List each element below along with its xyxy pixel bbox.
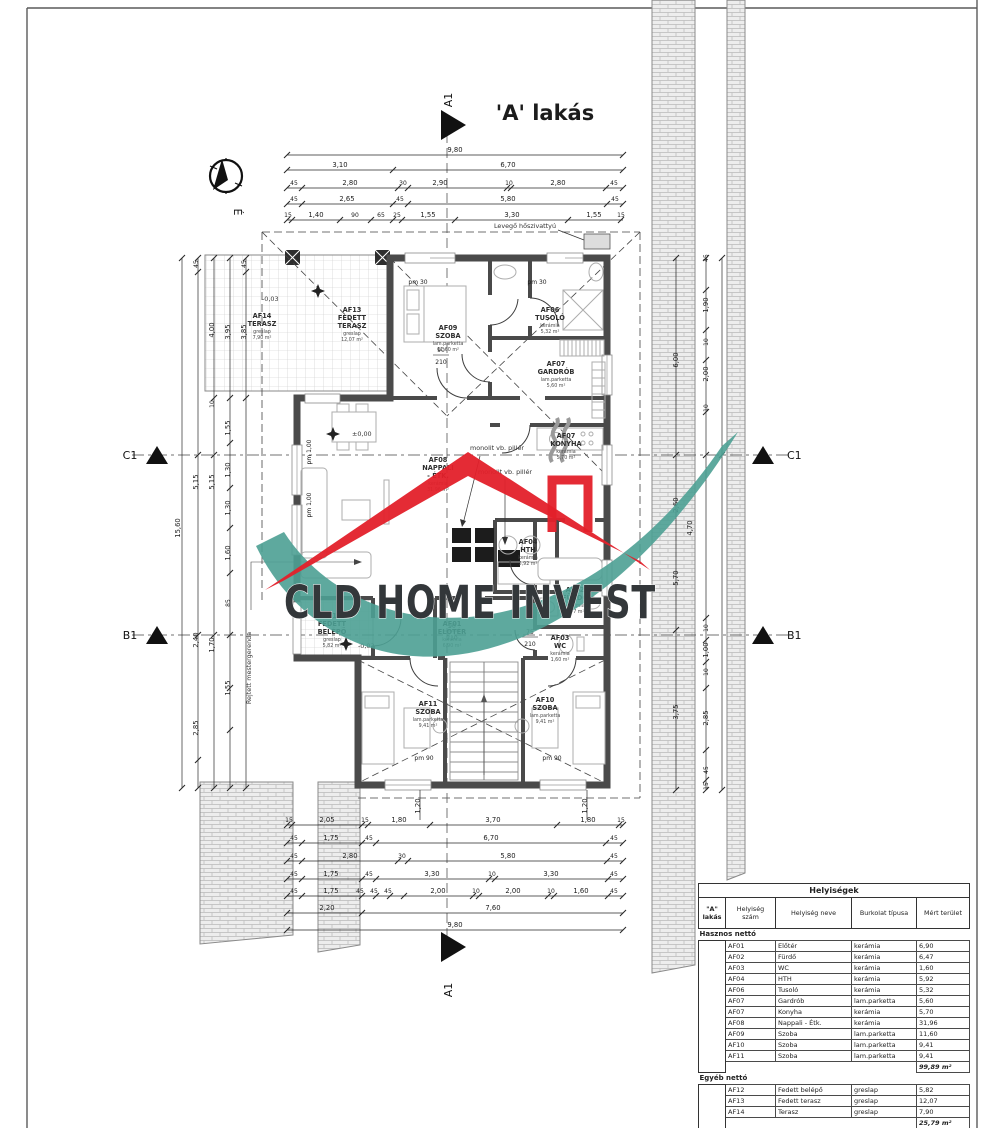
dim-label: 10 <box>703 624 710 632</box>
terrace-door <box>305 394 340 403</box>
dim-label: 2,00 <box>702 366 710 381</box>
apartment-cell <box>699 1085 726 1128</box>
cell-floor: lam.parketta <box>852 996 917 1007</box>
cell-room-id: AF11 <box>726 1051 776 1062</box>
section-label: Hasznos nettó <box>699 929 970 941</box>
cell-room-name: Terasz <box>776 1107 852 1118</box>
room-id: AF14 <box>253 312 272 320</box>
room-name: SZOBA <box>532 704 558 712</box>
room-name: KONYHA <box>550 440 582 448</box>
stair-arrow-head <box>481 694 487 702</box>
dim-label: 2,80 <box>342 852 357 860</box>
cell-room-id: AF12 <box>726 1085 776 1096</box>
room-name: HTH <box>520 546 536 554</box>
level-mark: -0,03 <box>262 295 279 303</box>
cell-room-id: AF08 <box>726 1018 776 1029</box>
room-area: 5,60 m² <box>547 383 566 389</box>
cell-floor: kerámia <box>852 985 917 996</box>
dim-label: 2,40 <box>192 632 200 647</box>
table-row: AF08Nappali - Étk.kerámia31,96 <box>699 1018 970 1029</box>
room-area: 9,41 m² <box>536 719 555 725</box>
dim-label: 1,55 <box>224 420 232 435</box>
cell-room-id: AF07 <box>726 996 776 1007</box>
room-material: lam.parketta <box>541 377 572 383</box>
cell-floor: lam.parketta <box>852 1040 917 1051</box>
dim-label: 15 <box>617 817 625 824</box>
chair <box>356 404 368 412</box>
bottom-left-strip-wide <box>200 782 293 944</box>
cell-room-id: AF13 <box>726 1096 776 1107</box>
cell-area: 6,47 <box>917 952 970 963</box>
room-material: kerámia <box>518 554 537 561</box>
dim-label: 3,70 <box>485 816 500 824</box>
col-header-room-name: Helyiség neve <box>776 898 852 929</box>
dim-label: 4,00 <box>208 322 216 337</box>
dim-label: 1,20 <box>581 798 589 813</box>
cell-area: 9,41 <box>917 1040 970 1051</box>
cell-room-id: AF07 <box>726 1007 776 1018</box>
empty-cell <box>726 1118 917 1128</box>
cell-room-name: WC <box>776 963 852 974</box>
dim-label: 1,40 <box>308 211 323 219</box>
dim-label: 1,75 <box>323 834 338 842</box>
bottom-left-strip-narrow <box>318 782 360 952</box>
cell-floor: kerámia <box>852 952 917 963</box>
cell-area: 31,96 <box>917 1018 970 1029</box>
cell-floor: lam.parketta <box>852 1051 917 1062</box>
subtotal-area: 99,89 m² <box>917 1062 970 1073</box>
dim-label: 45 <box>290 835 298 842</box>
pillar-block <box>498 550 520 567</box>
room-name: TERASZ <box>338 322 367 330</box>
pillar-leader-arrow <box>460 519 466 527</box>
dim-label: 45 <box>610 871 618 878</box>
dim-label: 45 <box>610 835 618 842</box>
dim-label: 90 <box>351 212 359 219</box>
dim-label: 1,55 <box>224 680 232 695</box>
stove-burner <box>589 432 593 436</box>
dim-label: 1,90 <box>702 297 710 312</box>
heat-pump-note: Levegő hőszivattyú <box>494 221 556 230</box>
dim-label: 2,65 <box>339 195 354 203</box>
shower-cross <box>563 290 603 330</box>
room-id: AF13 <box>343 306 362 314</box>
table-row: AF11Szobalam.parketta9,41 <box>699 1051 970 1062</box>
pillar-block <box>475 528 494 543</box>
dim-label: 30 <box>399 180 407 187</box>
table-row: AF06Tusolókerámia5,32 <box>699 985 970 996</box>
cell-room-id: AF09 <box>726 1029 776 1040</box>
room-schedule-table: Helyiségek "A" lakás Helyiség szám Helyi… <box>698 883 969 1128</box>
dim-label: 5,80 <box>500 852 515 860</box>
room-material: lam.parketta <box>433 341 464 347</box>
dim-label: 5,70 <box>672 570 680 585</box>
dim-label: 1,80 <box>580 816 595 824</box>
dim-label: 1,60 <box>573 887 588 895</box>
room-id: AF11 <box>419 700 438 708</box>
section-label: Egyéb nettó <box>699 1073 970 1085</box>
wardrobe-slats <box>564 340 600 356</box>
cell-room-id: AF14 <box>726 1107 776 1118</box>
dim-label: 1,75 <box>323 887 338 895</box>
room-area: 5,82 m² <box>323 643 342 649</box>
col-header-line: lakás <box>701 913 723 921</box>
dim-label: 45 <box>365 871 373 878</box>
cell-room-name: Szoba <box>776 1051 852 1062</box>
cell-area: 5,92 <box>917 974 970 985</box>
a1-flag-top <box>441 110 466 140</box>
dim-label: 4,70 <box>686 520 694 535</box>
dim-label: 1,60 <box>224 545 232 560</box>
sink <box>494 265 516 279</box>
cell-room-name: Tusoló <box>776 985 852 996</box>
dim-label: 45 <box>370 888 378 895</box>
cell-floor: greslap <box>852 1107 917 1118</box>
dim-label: 1,75 <box>323 870 338 878</box>
door-arc <box>462 354 490 382</box>
dim-label: 5,15 <box>192 474 200 489</box>
dim-label: 3,30 <box>504 211 519 219</box>
cell-area: 6,90 <box>917 941 970 952</box>
cell-room-name: Szoba <box>776 1029 852 1040</box>
room-material: kerámia <box>540 322 559 329</box>
dim-label: 3,30 <box>424 870 439 878</box>
c1-label-right: C1 <box>787 449 802 462</box>
dim-label: 15 <box>617 212 625 219</box>
sofa <box>301 468 327 558</box>
door-arc <box>410 658 438 686</box>
table-row: AF04HTHkerámia5,92 <box>699 974 970 985</box>
cell-floor: greslap <box>852 1085 917 1096</box>
pm-label: pm 30 <box>527 279 546 286</box>
stairs <box>450 662 518 780</box>
cell-room-name: Gardrób <box>776 996 852 1007</box>
dim-label: 45 <box>290 871 298 878</box>
pm-label: pm 1,00 <box>306 439 313 464</box>
table-row: AF13Fedett teraszgreslap12,07 <box>699 1096 970 1107</box>
floor-plan-sheet: 9,80 3,10 6,70 45 2,80 30 2,90 10 2,80 4… <box>0 0 1000 1128</box>
pm-label: pm 90 <box>542 755 561 762</box>
dim-label: 45 <box>356 888 364 895</box>
dim-label: 45 <box>241 260 248 268</box>
room-area: 12,07 m² <box>341 337 363 343</box>
room-material: lam.parketta <box>530 713 561 719</box>
logo-wordmark: CLD HOME INVEST <box>284 576 656 629</box>
dim-label: 3,10 <box>332 161 347 169</box>
room-area: 7,90 m² <box>253 335 272 341</box>
dim-label: 10 <box>703 404 710 412</box>
dim-label: 1,20 <box>414 798 422 813</box>
room-area: 5,32 m² <box>541 329 560 335</box>
dim-label: 1,55 <box>420 211 435 219</box>
a1-flag-bottom <box>441 932 466 962</box>
north-label: É <box>231 209 244 216</box>
dim-label: 2,90 <box>432 179 447 187</box>
dim-label: 15 <box>285 817 293 824</box>
dim-label: 15 <box>361 817 369 824</box>
cell-area: 5,70 <box>917 1007 970 1018</box>
dim-label: 1,30 <box>224 462 232 477</box>
dim-label: 1,55 <box>586 211 601 219</box>
room-material: lam.parketta <box>413 717 444 723</box>
dim-label: 10 <box>488 871 496 878</box>
dim-label: 65 <box>377 212 385 219</box>
dim-label: 30 <box>398 853 406 860</box>
table-sum-row: 25,79 m² <box>699 1118 970 1128</box>
dim-label: 15,60 <box>174 518 182 537</box>
cell-room-id: AF03 <box>726 963 776 974</box>
dim-label: 1,00 <box>702 642 710 657</box>
dim-label: 2,00 <box>505 887 520 895</box>
level-mark: ±0,00 <box>352 430 372 438</box>
dim-label: 2,80 <box>342 179 357 187</box>
table-row: AF07Gardróblam.parketta5,60 <box>699 996 970 1007</box>
room-name: SZOBA <box>415 708 441 716</box>
table-row: AF14Teraszgreslap7,90 <box>699 1107 970 1118</box>
table-sum-row: 99,89 m² <box>699 1062 970 1073</box>
room-area: 11,60 m² <box>437 347 459 353</box>
room-area: 5,92 m² <box>519 561 538 567</box>
dim-label: 45 <box>610 180 618 187</box>
cell-room-name: Előtér <box>776 941 852 952</box>
dim-label: 45 <box>610 888 618 895</box>
level-star <box>326 427 340 441</box>
pm-label: pm 1,00 <box>306 492 313 517</box>
dim-label: 3,75 <box>672 704 680 719</box>
cell-floor: kerámia <box>852 1018 917 1029</box>
pillar-note: monolit vb. pillér <box>470 444 524 452</box>
toilet <box>589 263 603 281</box>
a1-label-bottom: A1 <box>442 983 455 998</box>
b1-label-right: B1 <box>787 629 802 642</box>
cell-area: 9,41 <box>917 1051 970 1062</box>
wc-tank <box>577 637 584 651</box>
room-name: TUSOLÓ <box>535 313 565 322</box>
dim-label: 1,70 <box>208 637 216 652</box>
right-wall-strip-wide <box>652 0 695 973</box>
dim-label: 2,85 <box>702 710 710 725</box>
dim-label: 15 <box>703 782 710 790</box>
dim-label: 45 <box>290 196 298 203</box>
dim-label: 10 <box>472 888 480 895</box>
dim-label: 3,95 <box>224 324 232 339</box>
door-arc <box>437 368 467 398</box>
cell-floor: kerámia <box>852 963 917 974</box>
dim-label: 45 <box>396 196 404 203</box>
cell-area: 11,60 <box>917 1029 970 1040</box>
dim-label: 45 <box>610 853 618 860</box>
cell-floor: kerámia <box>852 1007 917 1018</box>
heat-pump-leader <box>558 230 584 240</box>
dim-label: 45 <box>384 888 392 895</box>
dim-label: 45 <box>703 254 710 262</box>
table-row: AF03WCkerámia1,60 <box>699 963 970 974</box>
dim-label: 7,60 <box>485 904 500 912</box>
cell-room-name: Nappali - Étk. <box>776 1018 852 1029</box>
cell-room-name: Fürdő <box>776 952 852 963</box>
dim-label: 2,85 <box>192 720 200 735</box>
cell-floor: kerámia <box>852 941 917 952</box>
hidden-beam-note: Rejtett mestergerenda <box>245 632 253 704</box>
cell-room-name: Fedett terasz <box>776 1096 852 1107</box>
cell-room-id: AF06 <box>726 985 776 996</box>
table-row: AF10Szobalam.parketta9,41 <box>699 1040 970 1051</box>
room-name: TERASZ <box>248 320 277 328</box>
cell-room-name: HTH <box>776 974 852 985</box>
cell-floor: greslap <box>852 1096 917 1107</box>
room-material: greslap <box>323 637 341 643</box>
dim-label: 6,70 <box>500 161 515 169</box>
room-material: greslap <box>253 329 271 335</box>
pillar-block <box>452 528 471 543</box>
dim-label: 45 <box>611 196 619 203</box>
room-id: AF07 <box>547 360 566 368</box>
dim-label: 10 <box>505 180 513 187</box>
cell-room-name: Konyha <box>776 1007 852 1018</box>
col-header-line: "A" <box>701 905 723 913</box>
table-row: AF12Fedett belépőgreslap5,82 <box>699 1085 970 1096</box>
room-id: AF10 <box>536 696 555 704</box>
dim-label: 5,15 <box>208 474 216 489</box>
pillar-block <box>452 547 471 562</box>
wardrobe <box>560 340 604 356</box>
dim-label: 2,05 <box>319 816 334 824</box>
stove-burner <box>581 432 585 436</box>
room-area: 9,41 m² <box>419 723 438 729</box>
dim-label: 1,80 <box>391 816 406 824</box>
subtotal-area: 25,79 m² <box>917 1118 970 1128</box>
b1-label-left: B1 <box>123 629 138 642</box>
cell-floor: kerámia <box>852 974 917 985</box>
col-header-area: Mért terület <box>917 898 970 929</box>
col-header-room-number: Helyiség szám <box>726 898 776 929</box>
a1-label-top: A1 <box>442 93 455 108</box>
heat-pump-unit <box>584 234 610 249</box>
cell-area: 5,82 <box>917 1085 970 1096</box>
room-id: AF03 <box>551 634 570 642</box>
room-area: 5,70 m² <box>557 455 576 461</box>
cell-room-id: AF04 <box>726 974 776 985</box>
dim-label: 6,70 <box>483 834 498 842</box>
room-material: kerámia <box>556 448 575 455</box>
room-id: AF08 <box>429 456 448 464</box>
door-size: 210 <box>524 641 536 648</box>
dim-label: 9,80 <box>447 921 462 929</box>
cell-room-name: Szoba <box>776 1040 852 1051</box>
pm-label: pm 30 <box>408 279 427 286</box>
dim-label: 2,00 <box>430 887 445 895</box>
room-name: WC <box>554 642 566 650</box>
dim-labels-top: 9,80 3,10 6,70 45 2,80 30 2,90 10 2,80 4… <box>284 146 625 219</box>
pillar-block <box>475 547 494 562</box>
dim-label: 45 <box>365 835 373 842</box>
page-title: 'A' lakás <box>496 101 594 125</box>
room-material: greslap <box>343 331 361 337</box>
chair <box>337 404 349 412</box>
room-id: AF09 <box>439 324 458 332</box>
door-size: 210 <box>435 359 447 366</box>
col-header-apartment: "A" lakás <box>699 898 726 929</box>
dim-label: 10 <box>703 338 710 346</box>
room-name: FEDETT <box>338 314 367 322</box>
empty-cell <box>726 1062 917 1073</box>
coffee-table <box>342 500 370 520</box>
cell-room-name: Fedett belépő <box>776 1085 852 1096</box>
dim-label: 45 <box>290 888 298 895</box>
dim-label: 5,80 <box>500 195 515 203</box>
dim-label: 1,30 <box>224 500 232 515</box>
dim-label: 10 <box>703 668 710 676</box>
pm-label: pm 90 <box>414 755 433 762</box>
cell-room-id: AF10 <box>726 1040 776 1051</box>
col-header-floor-type: Burkolat típusa <box>852 898 917 929</box>
dim-label: 85 <box>225 599 232 607</box>
cell-area: 5,60 <box>917 996 970 1007</box>
table-row: AF09Szobalam.parketta11,60 <box>699 1029 970 1040</box>
room-id: AF06 <box>541 306 560 314</box>
dim-label: 25 <box>393 212 401 219</box>
dim-label: 3,30 <box>543 870 558 878</box>
room-id: AF04 <box>519 538 538 546</box>
dim-label: 2,20 <box>319 904 334 912</box>
room-material: kerámia <box>550 650 569 657</box>
dim-label: 9,80 <box>447 146 462 154</box>
c1-label-left: C1 <box>123 449 138 462</box>
chair <box>337 442 349 450</box>
chair <box>356 442 368 450</box>
table-row: AF02Fürdőkerámia6,47 <box>699 952 970 963</box>
door-arc <box>490 299 518 325</box>
dim-label: 10 <box>547 888 555 895</box>
cell-area: 7,90 <box>917 1107 970 1118</box>
stove-burner <box>589 441 593 445</box>
cell-area: 5,32 <box>917 985 970 996</box>
dim-label: 6,00 <box>672 352 680 367</box>
cell-area: 1,60 <box>917 963 970 974</box>
dim-label: 45 <box>290 853 298 860</box>
dim-label: 10 <box>209 400 216 408</box>
room-name: GARDRÓB <box>538 367 575 376</box>
cell-room-id: AF02 <box>726 952 776 963</box>
cell-area: 12,07 <box>917 1096 970 1107</box>
pillar-leader-2-arrow <box>502 537 508 545</box>
room-area: 1,60 m² <box>551 657 570 663</box>
table-title: Helyiségek <box>699 884 970 898</box>
dim-label: 15 <box>284 212 292 219</box>
dim-label: 45 <box>703 766 710 774</box>
table-row: AF07Konyhakerámia5,70 <box>699 1007 970 1018</box>
cell-room-id: AF01 <box>726 941 776 952</box>
table-row: AF01Előtérkerámia6,90 <box>699 941 970 952</box>
dim-label: 45 <box>290 180 298 187</box>
dim-label: 2,80 <box>550 179 565 187</box>
cell-floor: lam.parketta <box>852 1029 917 1040</box>
dim-label: 45 <box>193 260 200 268</box>
apartment-cell <box>699 941 726 1073</box>
room-id: AF07 <box>557 432 576 440</box>
beam-leader-arrow <box>354 559 362 565</box>
room-name: SZOBA <box>435 332 461 340</box>
